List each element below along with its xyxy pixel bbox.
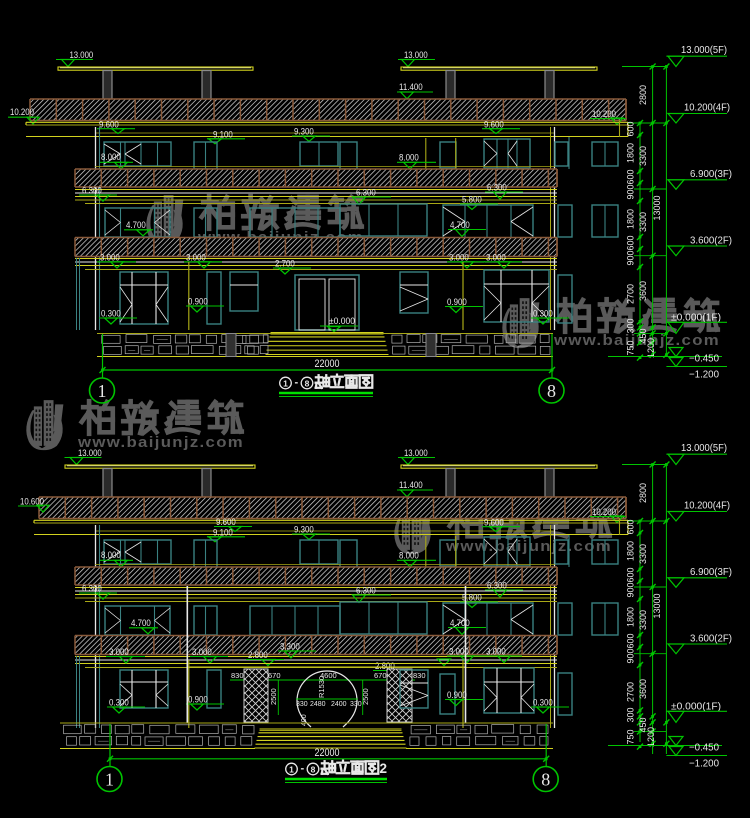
svg-text:-: -	[295, 377, 299, 389]
svg-text:1: 1	[105, 770, 114, 790]
svg-text:13.000(5F): 13.000(5F)	[681, 44, 727, 56]
svg-text:22000: 22000	[315, 358, 340, 370]
svg-text:1: 1	[283, 379, 288, 389]
svg-text:2800: 2800	[638, 85, 648, 105]
svg-text:3300: 3300	[638, 610, 648, 630]
svg-text:600: 600	[626, 567, 636, 582]
svg-text:300: 300	[626, 707, 636, 722]
svg-text:3600: 3600	[638, 679, 648, 699]
svg-text:10.200(4F): 10.200(4F)	[684, 102, 730, 114]
svg-text:330: 330	[350, 701, 362, 708]
svg-text:330: 330	[296, 701, 308, 708]
svg-text:8.000: 8.000	[101, 550, 121, 561]
svg-text:830: 830	[231, 671, 244, 680]
svg-text:6.900(3F): 6.900(3F)	[690, 168, 732, 180]
svg-text:www.baijunjz.com: www.baijunjz.com	[77, 434, 244, 451]
svg-text:−1.200: −1.200	[689, 369, 719, 381]
svg-text:2: 2	[380, 761, 388, 776]
svg-text:2800: 2800	[638, 483, 648, 503]
svg-text:13000: 13000	[652, 195, 662, 220]
svg-text:13.000(5F): 13.000(5F)	[681, 442, 727, 454]
svg-text:3.600(2F): 3.600(2F)	[690, 235, 732, 247]
svg-text:11.400: 11.400	[399, 82, 423, 93]
svg-text:1800: 1800	[626, 607, 636, 627]
svg-text:1800: 1800	[626, 541, 636, 561]
svg-text:±0.000: ±0.000	[329, 316, 355, 327]
svg-text:750: 750	[626, 340, 636, 355]
svg-text:300: 300	[626, 318, 636, 333]
svg-text:1800: 1800	[626, 209, 636, 229]
svg-text:900: 900	[626, 582, 636, 597]
svg-text:2400: 2400	[331, 701, 347, 708]
svg-text:400: 400	[301, 714, 308, 726]
svg-text:8.000: 8.000	[101, 152, 121, 163]
svg-text:2500: 2500	[269, 688, 278, 705]
svg-text:1200: 1200	[646, 338, 656, 358]
svg-text:900: 900	[626, 648, 636, 663]
svg-text:600: 600	[626, 169, 636, 184]
svg-text:3300: 3300	[638, 212, 648, 232]
svg-text:600: 600	[626, 633, 636, 648]
svg-text:8: 8	[547, 381, 556, 401]
svg-text:600: 600	[626, 235, 636, 250]
svg-text:8: 8	[311, 765, 316, 775]
svg-text:2500: 2500	[361, 688, 370, 705]
svg-text:13000: 13000	[652, 593, 662, 618]
svg-text:8: 8	[305, 379, 310, 389]
svg-text:1: 1	[289, 765, 294, 775]
svg-text:1: 1	[98, 381, 107, 401]
svg-text:8: 8	[541, 770, 550, 790]
svg-text:2700: 2700	[626, 284, 636, 304]
svg-text:830: 830	[413, 671, 426, 680]
svg-text:6.900(3F): 6.900(3F)	[690, 566, 732, 578]
svg-text:−1.200: −1.200	[689, 758, 719, 770]
svg-text:1800: 1800	[626, 143, 636, 163]
svg-text:3600: 3600	[638, 281, 648, 301]
svg-text:1200: 1200	[646, 727, 656, 747]
svg-text:3300: 3300	[638, 146, 648, 166]
svg-text:2700: 2700	[626, 682, 636, 702]
svg-text:670: 670	[374, 671, 387, 680]
svg-text:2480: 2480	[310, 701, 326, 708]
svg-text:600: 600	[626, 519, 636, 534]
svg-text:-: -	[301, 763, 305, 775]
svg-text:10.200(4F): 10.200(4F)	[684, 500, 730, 512]
svg-text:www.baijunjz.com: www.baijunjz.com	[553, 332, 720, 349]
svg-text:www.baijunjz.com: www.baijunjz.com	[445, 538, 612, 555]
svg-text:R1530: R1530	[317, 676, 326, 698]
svg-text:22000: 22000	[315, 747, 340, 759]
svg-text:3.600(2F): 3.600(2F)	[690, 633, 732, 645]
svg-text:−0.450: −0.450	[689, 742, 719, 754]
svg-text:900: 900	[626, 250, 636, 265]
svg-text:670: 670	[268, 671, 281, 680]
svg-text:900: 900	[626, 184, 636, 199]
svg-text:750: 750	[626, 729, 636, 744]
svg-text:−0.450: −0.450	[689, 353, 719, 365]
svg-text:10.200: 10.200	[10, 107, 34, 118]
svg-text:600: 600	[626, 121, 636, 136]
svg-text:3300: 3300	[638, 544, 648, 564]
svg-text:11.400: 11.400	[399, 480, 423, 491]
